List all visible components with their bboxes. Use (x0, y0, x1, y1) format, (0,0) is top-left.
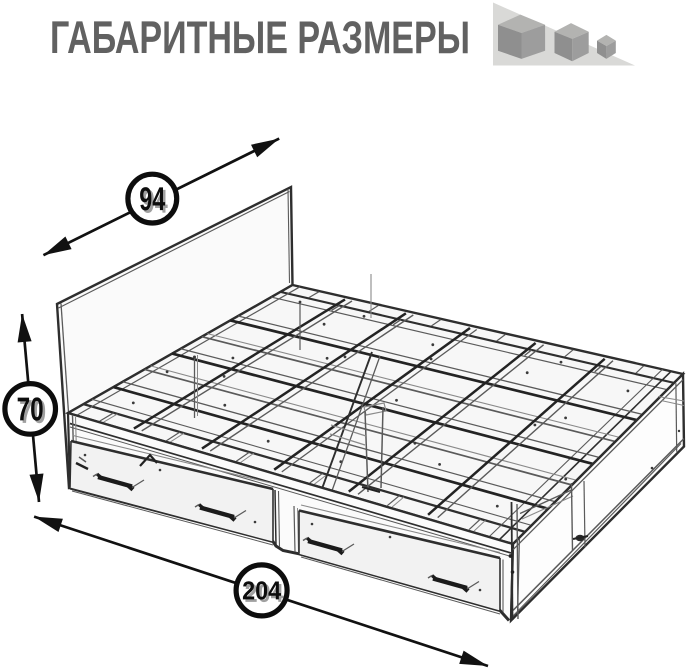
svg-text:70: 70 (17, 390, 44, 427)
svg-text:204: 204 (242, 575, 282, 605)
svg-text:94: 94 (139, 180, 165, 217)
svg-text:ГАБАРИТНЫЕ РАЗМЕРЫ: ГАБАРИТНЫЕ РАЗМЕРЫ (50, 11, 470, 63)
